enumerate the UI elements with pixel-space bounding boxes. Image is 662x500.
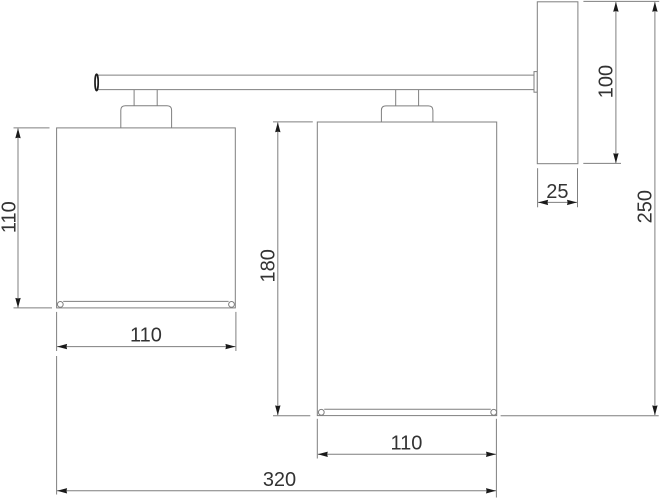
svg-text:110: 110 (130, 325, 162, 347)
svg-text:110: 110 (391, 432, 423, 454)
svg-text:110: 110 (0, 201, 21, 233)
svg-text:25: 25 (546, 181, 568, 203)
svg-text:320: 320 (263, 469, 296, 491)
svg-text:250: 250 (635, 190, 657, 223)
svg-text:180: 180 (258, 249, 280, 282)
svg-text:100: 100 (596, 65, 618, 98)
